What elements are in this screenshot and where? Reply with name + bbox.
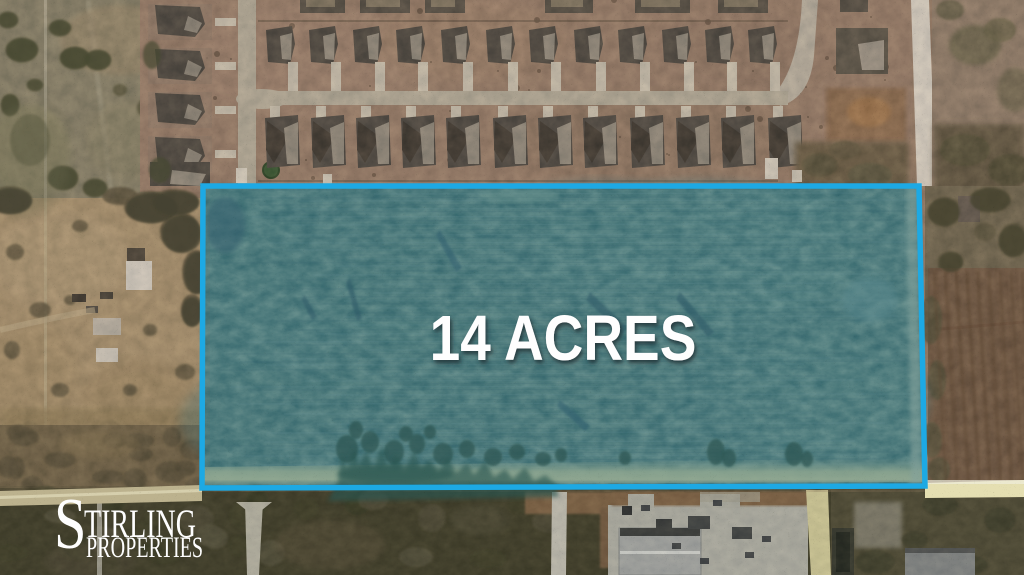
svg-text:14 ACRES: 14 ACRES [430, 302, 697, 374]
svg-text:PROPERTIES: PROPERTIES [86, 530, 203, 564]
svg-text:S: S [54, 484, 86, 565]
